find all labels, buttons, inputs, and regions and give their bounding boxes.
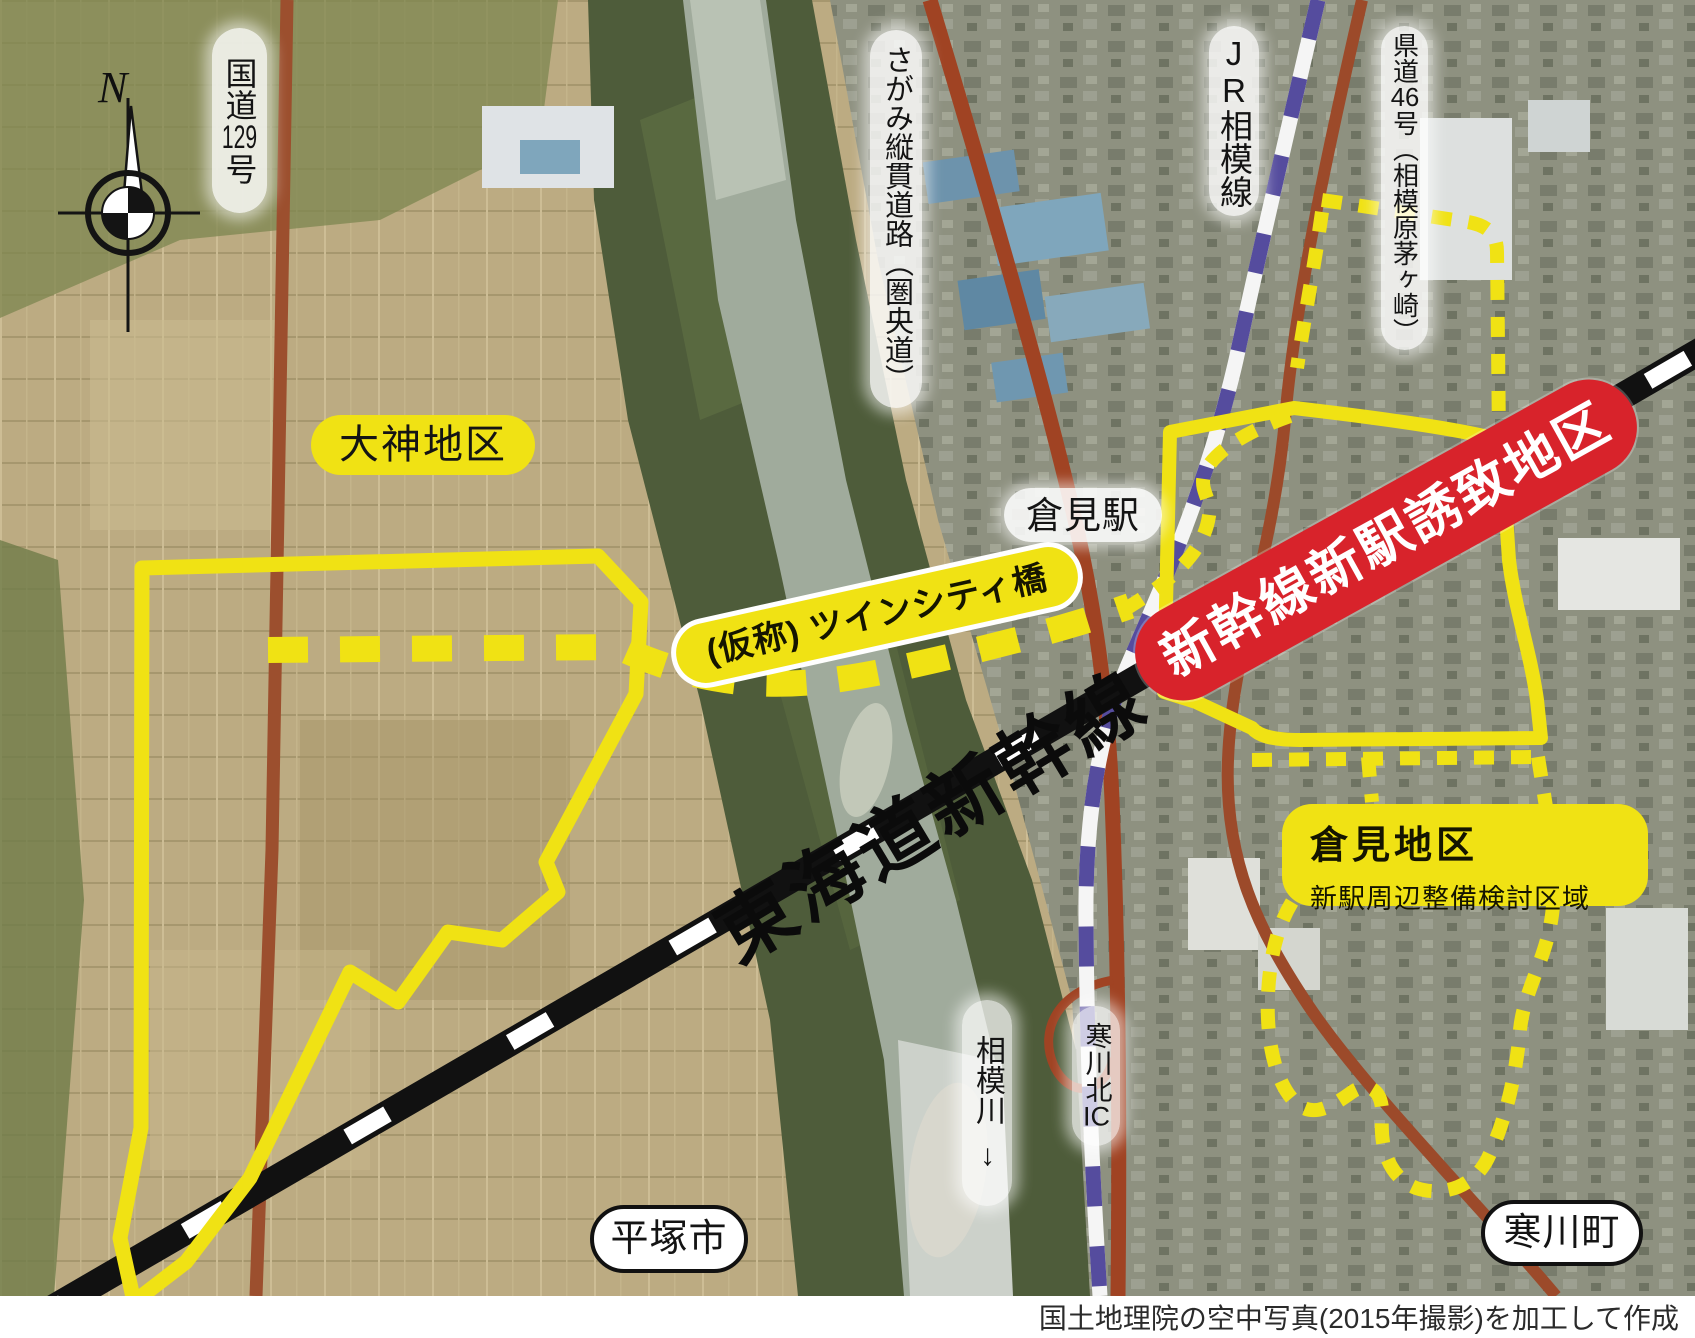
compass-north-label: N bbox=[98, 62, 127, 113]
aerial-map: N 国道129号 さがみ縦貫道路（圏央道） JR相模線 県道46号（相模原茅ヶ崎… bbox=[0, 0, 1695, 1296]
hiratsuka-city-label: 平塚市 bbox=[590, 1205, 748, 1273]
sagami-expressway-label: さがみ縦貫道路（圏央道） bbox=[870, 30, 922, 408]
map-figure: N 国道129号 さがみ縦貫道路（圏央道） JR相模線 県道46号（相模原茅ヶ崎… bbox=[0, 0, 1695, 1338]
samukawa-kita-ic-label: 寒川北IC bbox=[1072, 1006, 1120, 1146]
credit-strip: 国土地理院の空中写真(2015年撮影)を加工して作成 bbox=[0, 1296, 1695, 1338]
route46-label: 県道46号（相模原茅ヶ崎） bbox=[1381, 26, 1428, 350]
jr-sagami-line-label: JR相模線 bbox=[1209, 26, 1259, 216]
route129-label: 国道129号 bbox=[212, 28, 267, 213]
credit-text: 国土地理院の空中写真(2015年撮影)を加工して作成 bbox=[1039, 1297, 1695, 1337]
sagami-river-label: 相模川↓ bbox=[962, 1000, 1012, 1206]
kurami-station-label: 倉見駅 bbox=[1004, 488, 1162, 542]
down-arrow-icon: ↓ bbox=[972, 1139, 1002, 1172]
okami-district-label: 大神地区 bbox=[311, 415, 535, 475]
samukawa-town-label: 寒川町 bbox=[1481, 1200, 1643, 1266]
kurami-district-label: 倉見地区 新駅周辺整備検討区域 bbox=[1282, 804, 1648, 906]
